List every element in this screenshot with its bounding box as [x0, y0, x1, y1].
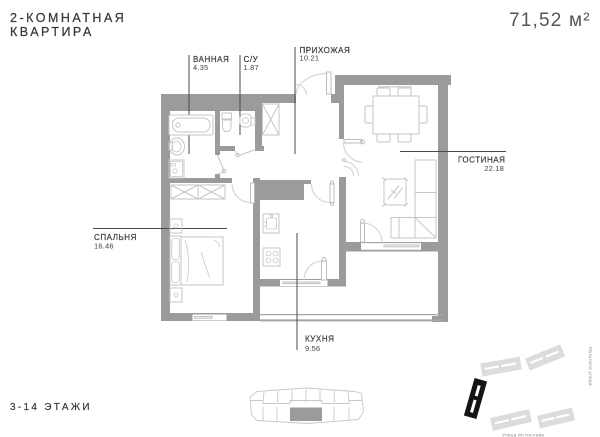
svg-text:9.56: 9.56	[305, 344, 320, 353]
svg-text:3-14 ЭТАЖИ: 3-14 ЭТАЖИ	[10, 402, 92, 413]
svg-text:Мукусала улица: Мукусала улица	[588, 347, 593, 386]
svg-text:16.46: 16.46	[94, 242, 114, 251]
svg-text:2-КОМНАТНАЯ: 2-КОМНАТНАЯ	[10, 11, 126, 25]
svg-text:22.18: 22.18	[484, 164, 504, 173]
svg-text:10.21: 10.21	[300, 54, 320, 63]
svg-text:1.87: 1.87	[244, 63, 259, 72]
svg-text:71,52 м²: 71,52 м²	[509, 10, 591, 31]
svg-text:КУХНЯ: КУХНЯ	[305, 335, 334, 344]
svg-text:КВАРТИРА: КВАРТИРА	[10, 25, 94, 39]
svg-text:4.35: 4.35	[193, 63, 208, 72]
svg-text:Улица Мстислава: Улица Мстислава	[502, 433, 544, 437]
